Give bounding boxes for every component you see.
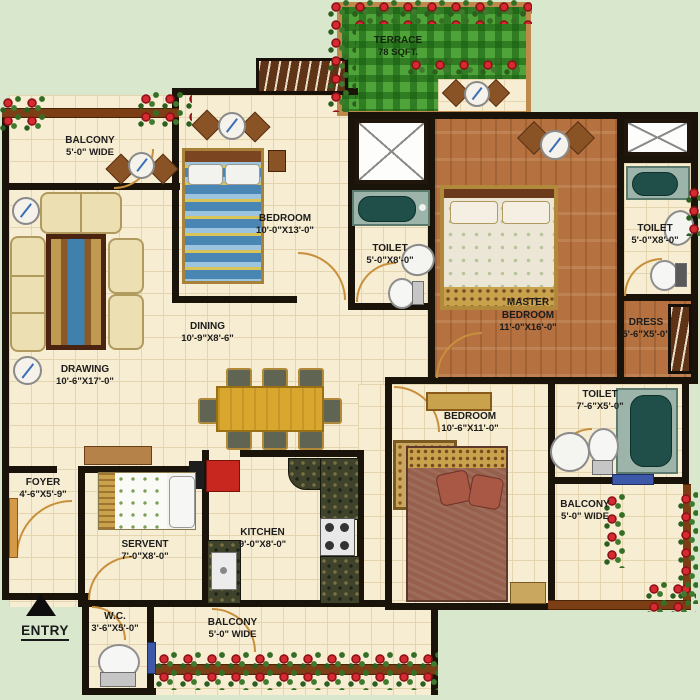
burner (340, 541, 349, 550)
drawing-label: DRAWING 10'-6"X17'-0" (25, 363, 145, 388)
bathtub-basin (632, 172, 678, 196)
entry-arrow-icon (26, 594, 56, 616)
master-bedroom-label: MASTER BEDROOM 11'-0"X16'-0" (468, 296, 588, 334)
nightstand (268, 150, 286, 172)
room-name: KITCHEN (205, 526, 320, 539)
room-name: W.C. (82, 610, 148, 623)
wall (617, 112, 624, 384)
bed (98, 472, 196, 530)
bathtub (352, 190, 430, 226)
toilet-top-right-label: TOILET 5'-0"X8'-0" (616, 222, 694, 247)
room-dims: 9'-0"X8'-0" (205, 539, 320, 551)
tub-drain (419, 204, 426, 211)
flower-garland (156, 652, 438, 690)
table-detail (549, 137, 562, 153)
toilet-tank (592, 460, 613, 475)
wall (691, 112, 698, 384)
wall (385, 377, 392, 610)
bed-headboard (185, 151, 261, 162)
room-name: TERRACE (348, 34, 448, 47)
wall (2, 183, 180, 190)
wall (348, 112, 434, 119)
room-dims: 7'-0"X8'-0" (95, 551, 195, 563)
kitchen-counter (320, 556, 360, 604)
door-leaf (9, 498, 18, 558)
servent-label: SERVENT 7'-0"X8'-0" (95, 538, 195, 563)
room-name: BALCONY (540, 498, 630, 511)
room-dims: 5'-6"X5'-0" (612, 329, 680, 341)
console-table (426, 392, 492, 411)
toilet-tank (675, 263, 687, 287)
floor-plan: ENTRY TERRACE 78 SQFT. BALCONY 5'-0" WID… (0, 0, 700, 700)
room-dims: 4'-6"X5'-9" (4, 489, 82, 501)
armchair (108, 238, 144, 294)
kitchen-counter (320, 458, 359, 520)
dining-chair (198, 398, 218, 424)
room-name: BEDROOM (225, 212, 345, 225)
wall (2, 466, 57, 473)
round-table-icon (540, 130, 570, 160)
dining-label: DINING 10'-9"X8'-6" (150, 320, 265, 345)
wall (2, 108, 9, 600)
toilet-bottom-right-label: TOILET 7'-6"X5'-0" (552, 388, 648, 413)
table-detail (472, 87, 483, 100)
pillow (467, 473, 504, 510)
kitchen-sink (211, 552, 237, 590)
room-dims: 78 SQFT. (348, 47, 448, 59)
dining-chair (298, 368, 324, 388)
flower-garland (352, 0, 532, 24)
burner (340, 523, 349, 532)
pillow (435, 469, 473, 507)
room-name: TOILET (616, 222, 694, 235)
sink-drain (220, 567, 227, 574)
wall (385, 603, 557, 610)
wall (618, 112, 698, 119)
pillow (502, 201, 550, 224)
bedroom-top-label: BEDROOM 10'-0"X13'-0" (225, 212, 345, 237)
room-dims: 5'-0"X8'-0" (616, 235, 694, 247)
room-name: TOILET (552, 388, 648, 401)
balcony-top-left-label: BALCONY 5'-0" WIDE (30, 134, 150, 159)
toilet-tank (100, 672, 136, 687)
dining-table (216, 386, 324, 432)
bed-quilt (115, 473, 167, 529)
table-detail (226, 119, 238, 133)
room-dims: 10'-6"X11'-0" (410, 423, 530, 435)
wall (682, 377, 689, 484)
room-dims: 7'-6"X5'-0" (552, 401, 648, 413)
nightstand (510, 582, 546, 604)
table-detail (136, 158, 147, 172)
flower-garland (138, 92, 192, 128)
refrigerator (206, 460, 240, 492)
wall (618, 156, 698, 163)
bathtub-basin (358, 196, 416, 222)
stove (320, 518, 355, 556)
bed (406, 446, 508, 602)
bed-headboard (444, 189, 554, 198)
room-name: TOILET (348, 242, 432, 255)
window (612, 474, 654, 485)
room-name: DRAWING (25, 363, 145, 376)
room-name: BEDROOM (468, 309, 588, 322)
balcony-bottom-label: BALCONY 5'-0" WIDE (185, 616, 280, 641)
room-name: SERVENT (95, 538, 195, 551)
dining-chair (322, 398, 342, 424)
pillow (188, 164, 223, 185)
dining-chair (262, 368, 288, 388)
flower-garland (646, 582, 696, 612)
dining-chair (262, 430, 288, 450)
wall (240, 450, 364, 457)
dress-label: DRESS 5'-6"X5'-0" (612, 316, 680, 341)
room-dims: 3'-6"X5'-0" (82, 623, 148, 635)
room-dims: 10'-9"X8'-6" (150, 333, 265, 345)
dining-chair (226, 430, 252, 450)
wall (82, 688, 156, 695)
shaft-right (624, 119, 691, 156)
armchair (108, 294, 144, 350)
wall (428, 112, 624, 119)
dresser (84, 446, 152, 465)
dining-chair (298, 430, 324, 450)
bedroom-bottom-label: BEDROOM 10'-6"X11'-0" (410, 410, 530, 435)
foyer-label: FOYER 4'-6"X5'-9" (4, 476, 82, 501)
shaft-left (355, 119, 428, 184)
room-name: DINING (150, 320, 265, 333)
window (147, 642, 156, 674)
wc-label: W.C. 3'-6"X5'-0" (82, 610, 148, 635)
room-dims: 11'-0"X16'-0" (468, 322, 588, 334)
sofa (40, 192, 122, 234)
fan-icon (12, 197, 40, 225)
terrace-label: TERRACE 78 SQFT. (348, 34, 448, 59)
room-dims: 10'-0"X13'-0" (225, 225, 345, 237)
toilet-middle-label: TOILET 5'-0"X8'-0" (348, 242, 432, 267)
burner (325, 523, 334, 532)
room-dims: 10'-6"X17'-0" (25, 376, 145, 388)
bed (440, 185, 558, 310)
bed-head-band (408, 448, 506, 468)
dining-chair (226, 368, 252, 388)
carpet (46, 234, 106, 350)
pillow (450, 201, 498, 224)
flower-garland (408, 58, 520, 78)
pillow (169, 476, 195, 528)
room-dims: 5'-0" WIDE (30, 147, 150, 159)
room-name: DRESS (612, 316, 680, 329)
sofa (10, 236, 46, 352)
bed-headboard (99, 473, 115, 529)
fan-detail (20, 204, 32, 218)
room-name: BEDROOM (410, 410, 530, 423)
room-dims: 5'-0" WIDE (185, 629, 280, 641)
kitchen-label: KITCHEN 9'-0"X8'-0" (205, 526, 320, 551)
pillow (225, 164, 260, 185)
balcony-bottom-right-label: BALCONY 5'-0" WIDE (540, 498, 630, 523)
wall (172, 296, 297, 303)
round-table-icon (218, 112, 246, 140)
room-dims: 5'-0"X8'-0" (348, 255, 432, 267)
room-dims: 5'-0" WIDE (540, 511, 630, 523)
bathtub (626, 166, 690, 200)
room-name: MASTER (468, 296, 588, 309)
room-name: BALCONY (30, 134, 150, 147)
burner (325, 541, 334, 550)
entry-text: ENTRY (21, 623, 69, 641)
room-name: FOYER (4, 476, 82, 489)
round-table-icon (464, 81, 490, 107)
entry-label: ENTRY (10, 622, 80, 641)
toilet-tank (412, 281, 424, 305)
flower-garland (0, 96, 46, 132)
room-name: BALCONY (185, 616, 280, 629)
